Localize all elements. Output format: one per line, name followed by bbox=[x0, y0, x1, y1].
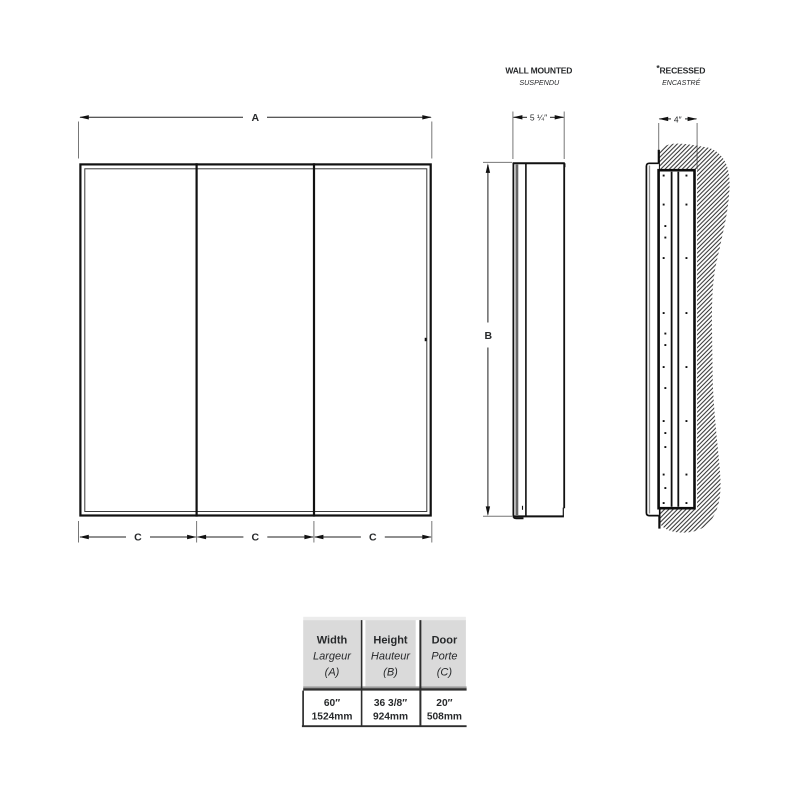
svg-text:508mm: 508mm bbox=[427, 712, 462, 723]
svg-text:B: B bbox=[485, 330, 493, 342]
svg-text:ENCASTRÉ: ENCASTRÉ bbox=[662, 78, 700, 87]
svg-text:(C): (C) bbox=[437, 667, 453, 679]
svg-text:SUSPENDU: SUSPENDU bbox=[519, 78, 560, 87]
svg-text:60″: 60″ bbox=[324, 698, 340, 709]
svg-text:A: A bbox=[252, 112, 260, 124]
svg-text:Porte: Porte bbox=[431, 651, 457, 663]
svg-text:924mm: 924mm bbox=[373, 712, 408, 723]
svg-text:C: C bbox=[134, 532, 142, 544]
svg-text:Largeur: Largeur bbox=[313, 651, 352, 663]
svg-text:20″: 20″ bbox=[436, 698, 452, 709]
svg-text:C: C bbox=[252, 532, 260, 544]
svg-text:C: C bbox=[369, 532, 377, 544]
svg-text:5 ¼″: 5 ¼″ bbox=[530, 112, 547, 122]
svg-text:WALL MOUNTED: WALL MOUNTED bbox=[505, 66, 572, 76]
svg-text:(B): (B) bbox=[383, 667, 398, 679]
svg-text:Door: Door bbox=[432, 635, 458, 647]
svg-text:*RECESSED: *RECESSED bbox=[656, 63, 705, 76]
svg-text:Hauteur: Hauteur bbox=[371, 651, 411, 663]
svg-text:1524mm: 1524mm bbox=[312, 712, 353, 723]
svg-text:4″: 4″ bbox=[674, 114, 682, 124]
svg-text:Width: Width bbox=[317, 635, 348, 647]
svg-text:(A): (A) bbox=[325, 667, 340, 679]
svg-text:36 3/8″: 36 3/8″ bbox=[374, 698, 407, 709]
svg-text:Height: Height bbox=[373, 635, 408, 647]
